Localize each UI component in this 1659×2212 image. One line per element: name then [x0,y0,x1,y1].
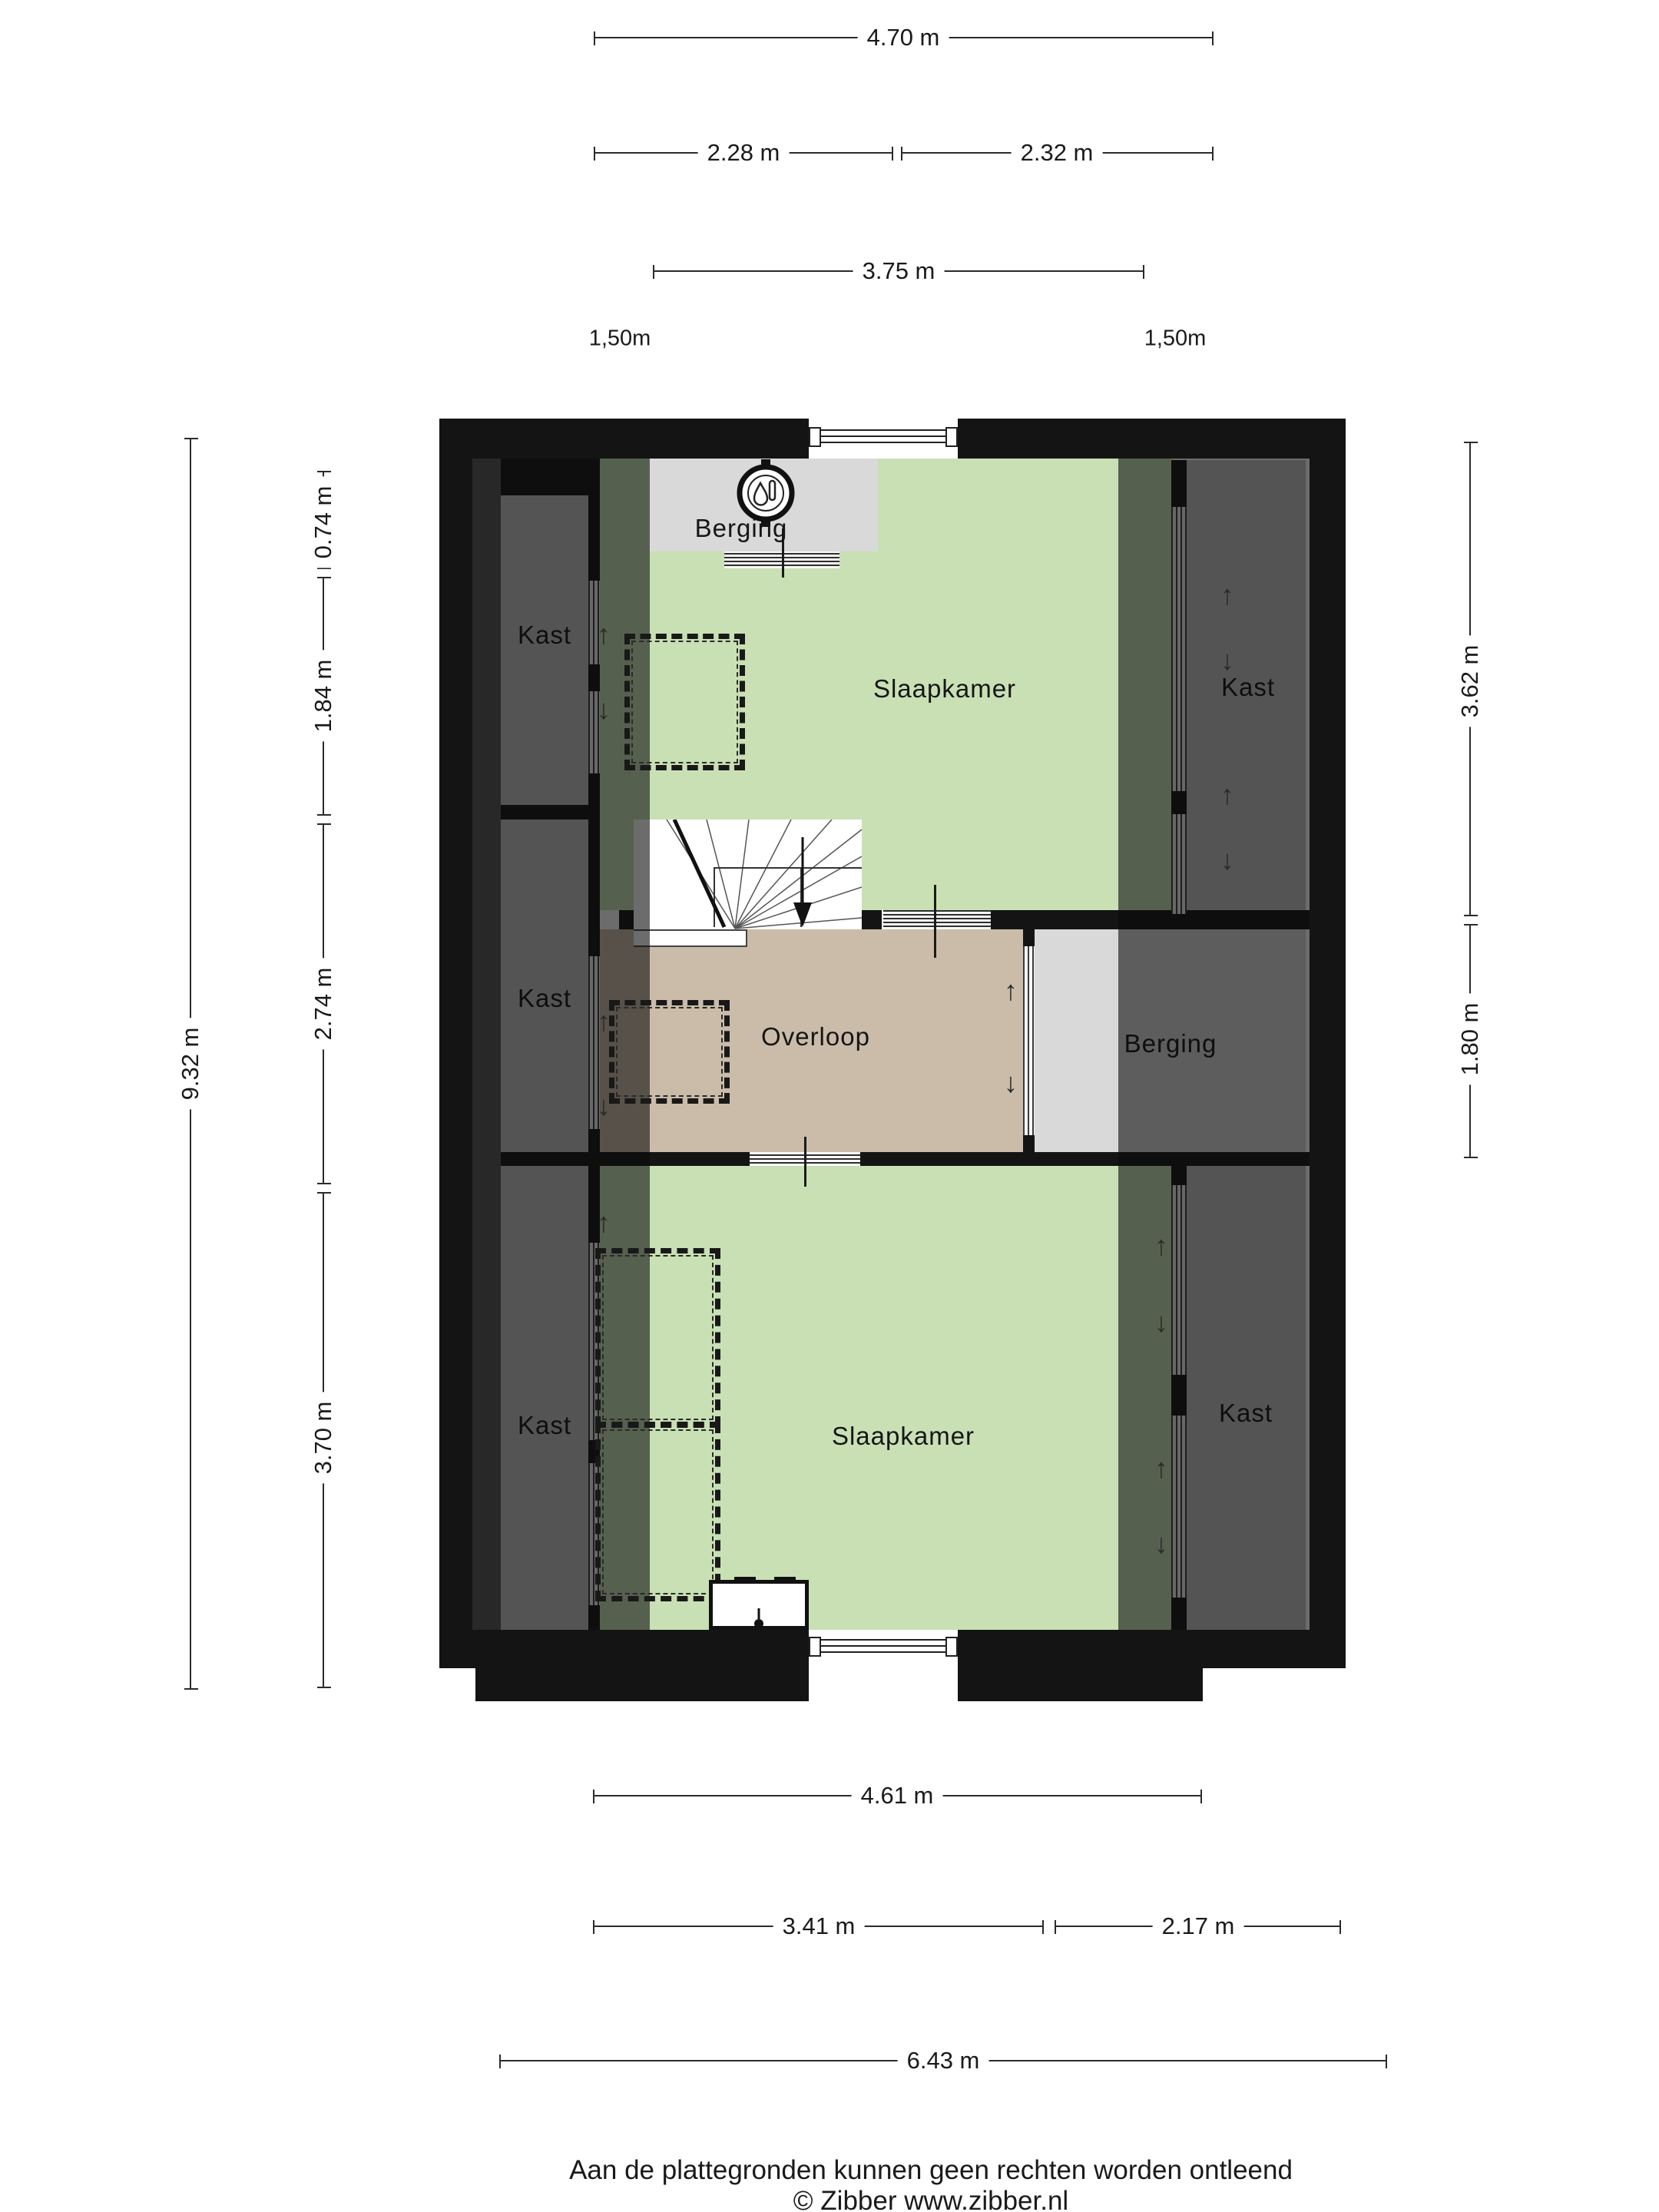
arrow-down-icon: ↓ [1154,1528,1168,1560]
height-line-label-left: 1,50m [589,326,651,352]
footer-disclaimer: Aan de plattegronden kunnen geen rechten… [569,2155,1293,2186]
room-label-berging-right: Berging [1124,1029,1217,1058]
slaapkamer-top-door [883,910,991,929]
berging-right-door-stub-top [1023,929,1035,946]
arrow-down-icon: ↓ [1220,644,1234,677]
dormer-outline-overloop-inner [616,1007,723,1097]
dim-label-bottom-room: 4.61 m [852,1782,943,1810]
mv-unit-tab-left [734,1577,756,1583]
dormer-outline-top [624,634,745,770]
mv-icon [753,1608,764,1630]
room-label-kast-bottom-left: Kast [518,1411,571,1440]
arrow-up-icon: ↑ [1154,1452,1168,1485]
dim-label-left-overall: 9.32 m [177,1018,204,1110]
dim-label-left-seg2: 1.84 m [310,651,337,742]
dormer-outline-top-inner [631,641,738,763]
footer-credit: © Zibber www.zibber.nl [793,2186,1068,2212]
mv-unit-tab-right [774,1577,796,1583]
arrow-up-icon: ↑ [1004,975,1018,1007]
window-top-glazing [820,429,946,443]
room-label-slaapkamer-bottom: Slaapkamer [832,1422,975,1451]
room-label-slaapkamer-top: Slaapkamer [873,674,1016,704]
stairs-down-arrow-icon [793,837,812,927]
window-bottom-cap-right [945,1637,958,1657]
window-bottom-glazing [820,1639,946,1653]
slaapkamer-top-door-axis [934,885,936,958]
wall-bottom-block-right [958,1630,1203,1701]
dormer-outline-bottom-b [595,1422,720,1601]
window-top-cap-left [809,427,821,447]
slaapkamer-bottom-door-axis [804,1137,806,1187]
wall-right [1310,419,1346,1668]
arrow-down-icon: ↓ [1220,844,1234,876]
room-label-overloop: Overloop [761,1022,870,1051]
window-top-cap-right [945,427,958,447]
arrow-down-icon: ↓ [1004,1067,1018,1099]
dim-label-top-right-part: 2.32 m [1012,139,1103,167]
arrow-up-icon: ↑ [1220,779,1234,811]
window-bottom-cap-left [809,1637,821,1657]
dim-label-top-inner: 3.75 m [853,257,945,285]
staircase [634,820,862,947]
height-line-label-right: 1,50m [1144,326,1207,352]
arrow-up-icon: ↑ [1154,1230,1168,1262]
room-label-kast-middle-left: Kast [518,984,571,1013]
dim-label-bottom-overall: 6.43 m [898,2047,989,2075]
dormer-outline-overloop [609,1000,730,1104]
dim-label-left-seg3: 2.74 m [310,959,337,1050]
mv-unit [709,1580,809,1630]
arrow-down-icon: ↓ [597,1090,611,1122]
dim-label-top-overall: 4.70 m [858,24,949,51]
berging-right-sliding-door [1023,946,1035,1135]
arrow-up-icon: ↑ [597,1005,611,1038]
wall-left [439,419,472,1668]
dim-label-top-left-part: 2.28 m [698,139,790,167]
arrow-up-icon: ↑ [597,618,611,651]
arrow-up-icon: ↑ [597,1207,611,1239]
floorplan-page: ↑ ↓ ↑ ↓ ↑ ↑ ↓ ↑ ↓ ↑ ↓ ↑ ↓ ↑ ↓ Berging Sl… [0,0,1659,2212]
dim-label-left-seg4: 3.70 m [310,1392,337,1484]
room-label-kast-top-right: Kast [1221,673,1275,702]
window-bottom [809,1630,958,1668]
dim-label-bottom-left-part: 3.41 m [773,1912,865,1940]
dim-label-left-seg1: 0.74 m [310,477,337,568]
dormer-outline-bottom-a [595,1248,720,1427]
window-top [809,419,958,459]
wall-bottom-block-left [475,1630,809,1701]
arrow-down-icon: ↓ [1154,1306,1168,1339]
dim-label-right-seg2: 1.80 m [1456,994,1484,1085]
room-label-berging-top: Berging [695,514,788,543]
arrow-up-icon: ↑ [1220,579,1234,611]
dim-label-right-seg1: 3.62 m [1456,636,1484,727]
arrow-down-icon: ↓ [597,694,611,726]
dormer-outline-bottom-b-inner [602,1429,714,1594]
room-label-kast-bottom-right: Kast [1219,1399,1273,1428]
dim-label-bottom-right-part: 2.17 m [1153,1912,1244,1940]
berging-right-door-stub-bottom [1023,1135,1035,1152]
dormer-outline-bottom-a-inner [602,1255,714,1420]
room-label-kast-top-left: Kast [518,621,571,650]
